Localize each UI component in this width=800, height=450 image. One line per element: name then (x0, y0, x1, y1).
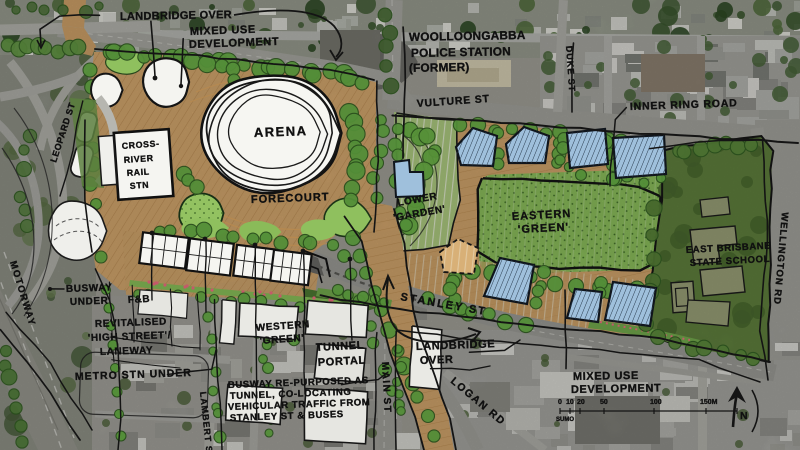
svg-text:UNDER: UNDER (70, 296, 109, 308)
svg-text:OVER: OVER (420, 354, 454, 367)
svg-text:BUSWAY: BUSWAY (66, 282, 113, 295)
svg-text:LANDBRIDGE OVER: LANDBRIDGE OVER (120, 9, 232, 23)
svg-text:SUMO: SUMO (556, 417, 574, 423)
svg-text:N: N (740, 410, 748, 422)
svg-text:MIXED USE: MIXED USE (190, 24, 256, 38)
svg-text:RAIL: RAIL (126, 166, 150, 178)
svg-text:(FORMER): (FORMER) (409, 60, 470, 75)
svg-text:50: 50 (600, 399, 608, 406)
svg-text:150M: 150M (700, 399, 718, 406)
svg-text:RIVER: RIVER (123, 153, 154, 165)
svg-text:STN: STN (129, 180, 149, 191)
svg-text:MIXED USE: MIXED USE (573, 370, 639, 383)
svg-text:TUNNEL: TUNNEL (316, 339, 365, 354)
svg-text:100: 100 (650, 399, 662, 406)
svg-text:LANEWAY: LANEWAY (100, 345, 154, 358)
svg-text:DEVELOPMENT: DEVELOPMENT (571, 382, 662, 396)
svg-text:F&B: F&B (128, 294, 151, 306)
svg-text:20: 20 (577, 399, 585, 406)
svg-text:WOOLLOONGABBA: WOOLLOONGABBA (409, 28, 526, 44)
svg-text:ARENA: ARENA (254, 123, 308, 140)
svg-text:POLICE STATION: POLICE STATION (411, 44, 511, 60)
svg-text:0: 0 (558, 399, 562, 406)
svg-text:10: 10 (566, 399, 574, 406)
svg-text:PORTAL: PORTAL (318, 354, 367, 368)
